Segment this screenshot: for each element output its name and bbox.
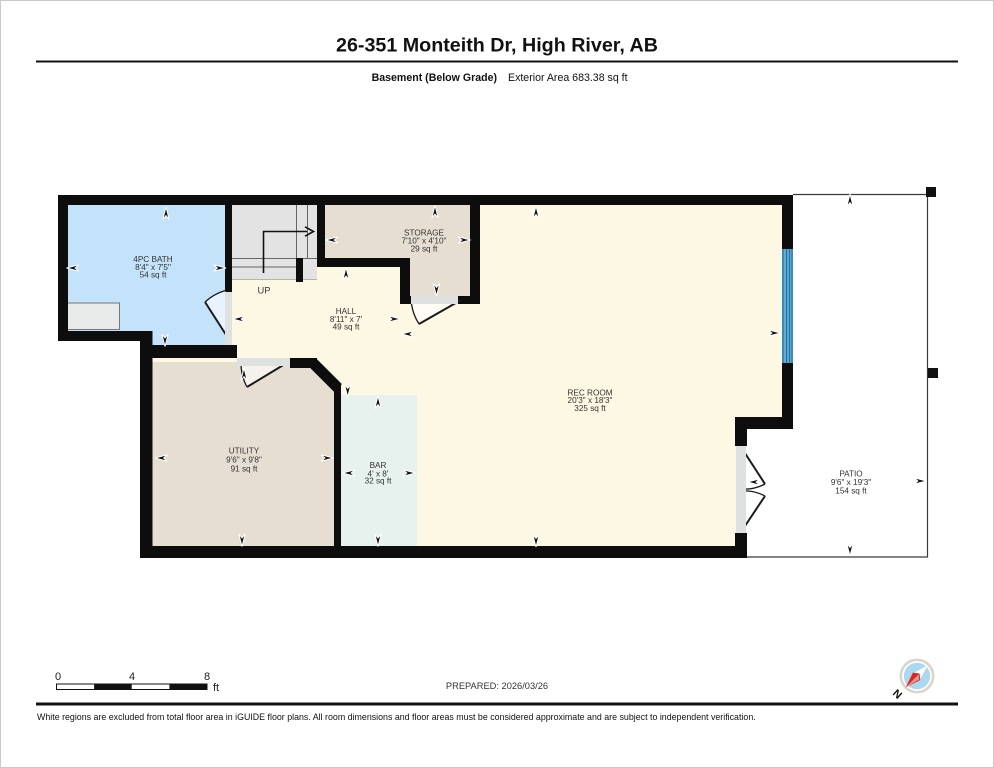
svg-text:0: 0 [55, 671, 61, 683]
svg-text:PREPARED: 2026/03/26: PREPARED: 2026/03/26 [446, 681, 548, 691]
svg-text:UTILITY: UTILITY [229, 447, 260, 456]
svg-text:91 sq ft: 91 sq ft [231, 465, 259, 474]
svg-text:154 sq ft: 154 sq ft [835, 486, 867, 495]
svg-text:29 sq ft: 29 sq ft [411, 244, 439, 253]
svg-text:26-351 Monteith Dr, High River: 26-351 Monteith Dr, High River, AB [336, 35, 658, 57]
svg-text:UP: UP [258, 286, 271, 296]
svg-text:White regions are excluded fro: White regions are excluded from total fl… [37, 712, 756, 722]
svg-text:9'6" x 9'8": 9'6" x 9'8" [226, 456, 262, 465]
svg-text:Exterior Area 683.38 sq ft: Exterior Area 683.38 sq ft [508, 72, 628, 84]
svg-text:ft: ft [213, 682, 219, 694]
svg-text:4: 4 [129, 671, 135, 683]
svg-text:49 sq ft: 49 sq ft [333, 323, 361, 332]
svg-text:N: N [890, 687, 904, 701]
svg-text:8: 8 [204, 671, 210, 683]
svg-text:325 sq ft: 325 sq ft [574, 404, 606, 413]
svg-text:32 sq ft: 32 sq ft [365, 477, 393, 486]
svg-text:54 sq ft: 54 sq ft [140, 271, 168, 280]
svg-text:Basement (Below Grade): Basement (Below Grade) [372, 72, 497, 84]
